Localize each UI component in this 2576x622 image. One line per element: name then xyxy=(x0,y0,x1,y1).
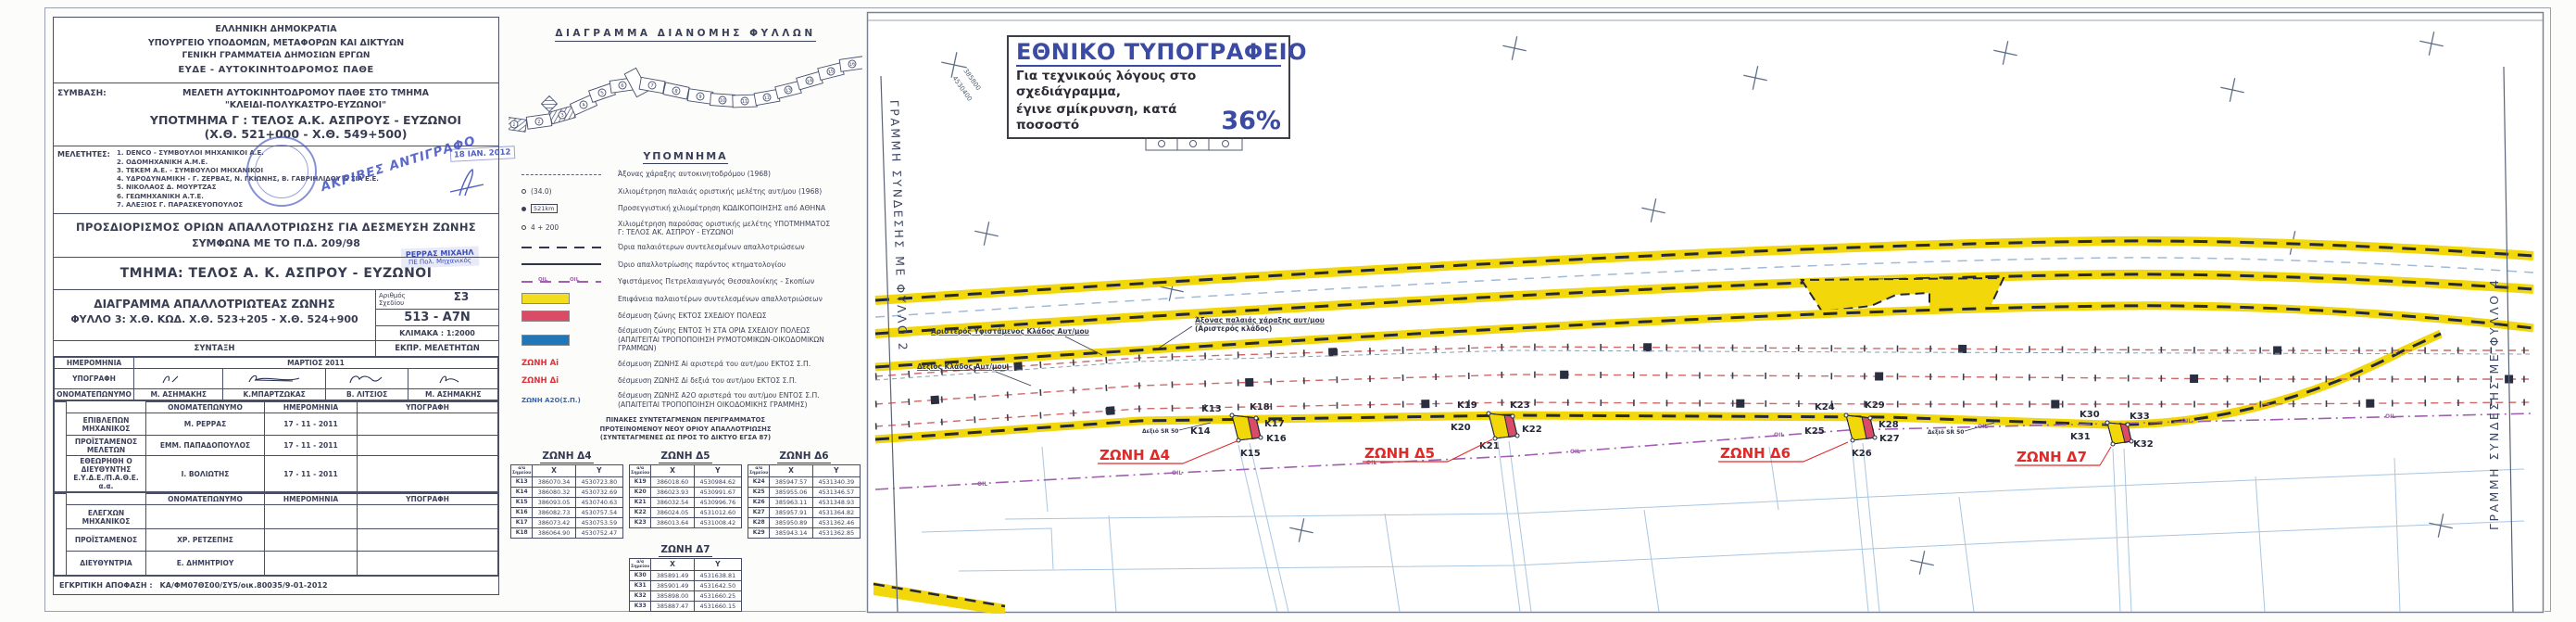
date-cell: 17 - 11 - 2011 xyxy=(265,456,358,492)
designer-item: 6. ΓΕΩΜΗΧΑΝΙΚΗ Α.Τ.Ε. xyxy=(117,193,379,201)
table-row: K17386073.424530753.59 xyxy=(511,517,623,527)
sr-road-label: Δεξιό SR 50 xyxy=(1928,429,1964,436)
signature-mark xyxy=(223,369,325,389)
name-value: Β. ΛΙΤΣΙΟΣ xyxy=(325,389,408,400)
name-value: Μ. ΑΣΗΜΑΚΗΣ xyxy=(408,389,498,400)
svg-text:K14: K14 xyxy=(1190,426,1211,437)
current-chainage-symbol: 4 + 200 xyxy=(521,222,607,235)
col-header-x: X xyxy=(770,464,812,476)
col-header-y: Y xyxy=(812,464,860,476)
table-row: K14386080.324530732.69 xyxy=(511,487,623,497)
legend-label: Επιφάνεια παλαιοτέρων συντελεσμένων απαλ… xyxy=(607,295,823,303)
col-header-date: ΗΜΕΡΟΜΗΝΙΑ xyxy=(265,494,358,505)
col-header-point: α/α Σημείου xyxy=(630,558,651,570)
legend-label: Άξονας χάραξης αυτοκινητοδρόμου (1968) xyxy=(607,170,771,178)
col-header-signature: ΥΠΟΓΡΑΦΗ xyxy=(358,402,498,413)
zone-table-title: ΖΩΝΗ Δ6 xyxy=(748,451,861,462)
signature-cell xyxy=(358,529,498,552)
svg-text:K30: K30 xyxy=(2080,410,2100,420)
svg-text:K32: K32 xyxy=(2133,439,2154,450)
svg-text:K18: K18 xyxy=(1250,402,1270,413)
table-row: K16386082.734530757.54 xyxy=(511,507,623,517)
current-sheet-marker xyxy=(542,96,558,112)
left-branch-label: Αριστερός Υφιστάμενος Κλάδος Αυτ/μου xyxy=(931,327,1089,336)
table-row: K28385950.894531362.46 xyxy=(748,517,861,527)
svg-text:K17: K17 xyxy=(1264,419,1285,429)
legend-item: 521km Προσεγγιστική χιλιομέτρηση ΚΩΔΙΚΟΠ… xyxy=(521,202,862,215)
right-branch-label: Δεξιός Κλάδος Αυτ/μου xyxy=(917,362,1007,371)
date-cell xyxy=(265,552,358,576)
table-row: K22386024.054531012.60 xyxy=(630,507,742,517)
round-seal-stamp xyxy=(246,136,317,207)
legend-label: Υφιστάμενος Πετρελαιαγωγός Θεσσαλονίκης … xyxy=(607,277,814,286)
table-row: K31385901.494531642.50 xyxy=(630,580,742,590)
svg-text:OIL: OIL xyxy=(1774,432,1784,438)
col-header-point: α/α Σημείου xyxy=(511,464,533,476)
stamp-signature xyxy=(432,164,487,204)
national-printing-office-note: ΕΘΝΙΚΟ ΤΥΠΟΓΡΑΦΕΙΟ Για τεχνικούς λόγους … xyxy=(1007,35,1290,139)
determination-line: ΠΡΟΣΔΙΟΡΙΣΜΟΣ ΟΡΙΩΝ ΑΠΑΛΛΟΤΡΙΩΣΗΣ ΓΙΑ ΔΕ… xyxy=(57,221,495,234)
contract-label: ΣΥΜΒΑΣΗ: xyxy=(57,87,117,142)
table-row: K33385887.474531660.15 xyxy=(630,601,742,611)
drawing-sheet-range: ΦΥΛΛΟ 3: Χ.Θ. ΚΩΔ. Χ.Θ. 523+205 - Χ.Θ. 5… xyxy=(56,313,373,325)
role-cell: ΕΘΕΩΡΗΘΗ Ο ΔΙΕΥΘΥΝΤΗΣ Ε.Υ.Δ.Ε./Π.Α.Θ.Ε. … xyxy=(67,456,146,492)
drawing-number-label: Αριθμός Σχεδίου xyxy=(376,290,424,309)
designer-item: 7. ΑΛΕΞΙΟΣ Γ. ΠΑΡΑΣΚΕΥΟΠΟΥΛΟΣ xyxy=(117,201,379,209)
drawing-sheet: ΕΛΛΗΝΙΚΗ ΔΗΜΟΚΡΑΤΙΑ ΥΠΟΥΡΓΕΙΟ ΥΠΟΔΟΜΩΝ, … xyxy=(0,0,2576,622)
zone-label-d7: ΖΩΝΗ Δ7 xyxy=(2017,449,2087,465)
zone-table-d7: ΖΩΝΗ Δ7 α/α ΣημείουXY K30385891.49453163… xyxy=(629,544,742,612)
printing-office-line: Για τεχνικούς λόγους στο σχεδιάγραμμα, xyxy=(1016,69,1281,100)
svg-text:OIL: OIL xyxy=(2385,413,2395,420)
zone-table-title: ΖΩΝΗ Δ5 xyxy=(629,451,742,462)
svg-text:11: 11 xyxy=(742,99,748,105)
date-row-label: ΗΜΕΡΟΜΗΝΙΑ xyxy=(55,358,134,369)
role-cell: ΕΛΕΓΧΩΝ ΜΗΧΑΝΙΚΟΣ xyxy=(67,505,146,529)
legend-panel: ΔΙΑΓΡΑΜΜΑ ΔΙΑΝΟΜΗΣ ΦΥΛΛΩΝ 1 2 3 4 5 6 7 … xyxy=(509,17,862,615)
legend-label: δέσμευση ΖΩΝΗΣ Α2Ο αριστερά του αυτ/μου … xyxy=(607,391,843,409)
table-row: K20386023.934530991.67 xyxy=(630,487,742,497)
legend-item: OILOIL Υφιστάμενος Πετρελαιαγωγός Θεσσαλ… xyxy=(521,275,862,288)
review-table: ΟΝΟΜΑΤΕΠΩΝΥΜΟ ΗΜΕΡΟΜΗΝΙΑ ΥΠΟΓΡΑΦΗ ΕΛΕΓΧΩ… xyxy=(54,493,498,577)
svg-text:K23: K23 xyxy=(1510,400,1530,411)
col-header-signature: ΥΠΟΓΡΑΦΗ xyxy=(358,494,498,505)
legend-item: Άξονας χάραξης αυτοκινητοδρόμου (1968) xyxy=(521,168,862,181)
table-row: K15386093.054530740.63 xyxy=(511,497,623,507)
table-row: K19386018.604530984.62 xyxy=(630,476,742,487)
name-cell: Μ. ΡΕΡΡΑΣ xyxy=(146,413,265,436)
signature-cell xyxy=(358,552,498,576)
agency-line: ΓΕΝΙΚΗ ΓΡΑΜΜΑΤΕΙΑ ΔΗΜΟΣΙΩΝ ΕΡΓΩΝ xyxy=(57,50,495,63)
drawing-title: ΔΙΑΓΡΑΜΜΑ ΑΠΑΛΛΟΤΡΙΩΤΕΑΣ ΖΩΝΗΣ xyxy=(56,298,373,311)
reduction-percentage: 36% xyxy=(1221,110,1281,133)
engineer-name-stamp: ΡΕΡΡΑΣ ΜΙΧΑΗΛ ΠΕ Πολ. Μηχανικός xyxy=(401,247,479,269)
expropriation-limit-symbol xyxy=(521,258,607,271)
agency-line: ΕΥΔΕ - ΑΥΤΟΚΙΝΗΤΟΔΡΟΜΟΣ ΠΑΘΕ xyxy=(57,63,495,78)
name-cell: Ι. ΒΟΛΙΩΤΗΣ xyxy=(146,456,265,492)
designer-rep-label: ΕΚΠΡ. ΜΕΛΕΤΗΤΩΝ xyxy=(376,341,498,356)
svg-text:K28: K28 xyxy=(1879,420,1899,430)
zone-ai-text: ΖΩΝΗ Αi xyxy=(521,357,607,370)
side-strip xyxy=(55,402,67,492)
blue-zone-swatch xyxy=(521,334,607,347)
svg-text:K13: K13 xyxy=(1201,404,1222,414)
axis-dash-symbol xyxy=(521,168,607,181)
designers-label: ΜΕΛΕΤΗΤΕΣ: xyxy=(57,149,117,209)
side-strip xyxy=(55,494,67,576)
name-value: Μ. ΑΣΗΜΑΚΗΣ xyxy=(134,389,223,400)
col-header-x: X xyxy=(651,558,694,570)
sr-road-label: Δεξιό SR 50 xyxy=(1142,428,1178,435)
signature-cell xyxy=(358,456,498,492)
contract-line: (Χ.Θ. 521+000 - Χ.Θ. 549+500) xyxy=(117,127,495,141)
zone-label-d6: ΖΩΝΗ Δ6 xyxy=(1720,445,1791,462)
zone-label-d5: ΖΩΝΗ Δ5 xyxy=(1364,445,1435,462)
title-block: ΕΛΛΗΝΙΚΗ ΔΗΜΟΚΡΑΤΙΑ ΥΠΟΥΡΓΕΙΟ ΥΠΟΔΟΜΩΝ, … xyxy=(53,17,499,595)
date-value: ΜΑΡΤΙΟΣ 2011 xyxy=(134,358,498,369)
svg-text:OIL: OIL xyxy=(1570,449,1580,455)
col-header-x: X xyxy=(651,464,694,476)
agency-header: ΕΛΛΗΝΙΚΗ ΔΗΜΟΚΡΑΤΙΑ ΥΠΟΥΡΓΕΙΟ ΥΠΟΔΟΜΩΝ, … xyxy=(54,18,498,83)
table-row: K32385898.004531660.25 xyxy=(630,590,742,601)
designer-item: 1. DENCO - ΣΥΜΒΟΥΛΟΙ ΜΗΧΑΝΙΚΟΙ Α.Ε. xyxy=(117,149,379,158)
table-row: K30385891.494531638.81 xyxy=(630,570,742,580)
legend-item: ΖΩΝΗ Α2Ο(Σ.Π.) δέσμευση ΖΩΝΗΣ Α2Ο αριστε… xyxy=(521,391,862,409)
drawing-scale: ΚΛΙΜΑΚΑ : 1:2000 xyxy=(376,326,498,340)
approval-decision: ΕΓΚΡΙΤΙΚΗ ΑΠΟΦΑΣΗ : ΚΑ/ΦΜ07ΘΣ00/ΣΥ5/οικ.… xyxy=(54,577,498,594)
old-expropriation-dash-symbol xyxy=(521,241,607,254)
col-header-y: Y xyxy=(694,464,741,476)
zone-di-text: ΖΩΝΗ Δi xyxy=(521,374,607,387)
svg-text:K22: K22 xyxy=(1522,425,1542,435)
svg-text:K19: K19 xyxy=(1457,400,1477,411)
map-panel: 385800 4530400 xyxy=(866,11,2545,614)
legend-label: Χιλιομέτρηση παρούσας οριστικής μελέτης … xyxy=(607,220,838,237)
role-cell: ΕΠΙΒΛΕΠΩΝ ΜΗΧΑΝΙΚΟΣ xyxy=(67,413,146,436)
name-cell: ΧΡ. ΡΕΤΖΕΠΗΣ xyxy=(146,529,265,552)
legend-label: δέσμευση ζώνης ΕΝΤΟΣ Ή ΣΤΑ ΟΡΙΑ ΣΧΕΔΙΟΥ … xyxy=(607,326,843,352)
engineer-title: ΠΕ Πολ. Μηχανικός xyxy=(406,257,474,267)
date-cell: 17 - 11 - 2011 xyxy=(265,436,358,456)
date-cell xyxy=(265,505,358,529)
svg-text:K16: K16 xyxy=(1266,434,1287,444)
note-line: ΠΙΝΑΚΕΣ ΣΥΝΤΕΤΑΓΜΕΝΩΝ ΠΕΡΙΓΡΑΜΜΑΤΟΣ xyxy=(509,416,862,425)
sheet-chain: 1 2 3 4 5 6 7 8 9 10 11 12 13 14 15 16 xyxy=(509,57,862,132)
drawing-number: Σ3 xyxy=(424,290,498,309)
printing-office-title: ΕΘΝΙΚΟ ΤΥΠΟΓΡΑΦΕΙΟ xyxy=(1016,40,1281,67)
legend-label: Όριο απαλλοτρίωσης παρόντος κτηματολογίο… xyxy=(607,260,785,269)
name-cell: Ε. ΔΗΜΗΤΡΙΟΥ xyxy=(146,552,265,576)
coded-chainage-symbol: 521km xyxy=(521,202,607,215)
legend-item: Όρια παλαιότερων συντελεσμένων απαλλοτρι… xyxy=(521,241,862,254)
agency-line: ΕΛΛΗΝΙΚΗ ΔΗΜΟΚΡΑΤΙΑ xyxy=(57,23,495,37)
name-row-label: ΟΝΟΜΑΤΕΠΩΝΥΜΟ xyxy=(55,389,134,400)
contract-line: "ΚΛΕΙΔΙ-ΠΟΛΥΚΑΣΤΡΟ-ΕΥΖΩΝΟΙ" xyxy=(117,99,495,111)
zone-a2o-text: ΖΩΝΗ Α2Ο(Σ.Π.) xyxy=(521,394,607,407)
svg-text:K15: K15 xyxy=(1240,449,1261,459)
signature-mark xyxy=(134,369,223,389)
legend-title: ΥΠΟΜΝΗΜΑ xyxy=(509,150,862,162)
signature-mark xyxy=(408,369,498,389)
red-zone-swatch xyxy=(521,310,607,323)
col-header-point: α/α Σημείου xyxy=(630,464,651,476)
legend-item: δέσμευση ζώνης ΕΝΤΟΣ Ή ΣΤΑ ΟΡΙΑ ΣΧΕΔΙΟΥ … xyxy=(521,326,862,352)
svg-text:K27: K27 xyxy=(1879,434,1900,444)
role-cell: ΔΙΕΥΘΥΝΤΡΙΑ xyxy=(67,552,146,576)
sheet-index-title: ΔΙΑΓΡΑΜΜΑ ΔΙΑΝΟΜΗΣ ΦΥΛΛΩΝ xyxy=(509,17,862,39)
legend-item: Όριο απαλλοτρίωσης παρόντος κτηματολογίο… xyxy=(521,258,862,271)
name-cell: ΕΜΜ. ΠΑΠΑΔΟΠΟΥΛΟΣ xyxy=(146,436,265,456)
table-row: K26385963.114531348.93 xyxy=(748,497,861,507)
legend-item: (34.0) Χιλιομέτρηση παλαιάς οριστικής με… xyxy=(521,185,862,198)
svg-text:OIL: OIL xyxy=(977,481,987,488)
svg-text:12: 12 xyxy=(763,95,770,101)
old-axis-label: Άξονας παλαιάς χάραξης αυτ/μου xyxy=(1195,316,1325,324)
table-row: K27385957.914531364.82 xyxy=(748,507,861,517)
legend-item: Επιφάνεια παλαιοτέρων συντελεσμένων απαλ… xyxy=(521,292,862,305)
legend-label: Προσεγγιστική χιλιομέτρηση ΚΩΔΙΚΟΠΟΙΗΣΗΣ… xyxy=(607,204,825,212)
legend-item: ΖΩΝΗ Δi δέσμευση ΖΩΝΗΣ Δi δεξιά του αυτ/… xyxy=(521,374,862,387)
date-cell: 17 - 11 - 2011 xyxy=(265,413,358,436)
signature-cell xyxy=(358,505,498,529)
pipeline-symbol: OILOIL xyxy=(521,275,607,288)
svg-text:K29: K29 xyxy=(1865,400,1885,411)
svg-text:K31: K31 xyxy=(2070,432,2091,442)
sheet-index-diagram: 1 2 3 4 5 6 7 8 9 10 11 12 13 14 15 16 xyxy=(509,39,862,137)
legend-label: δέσμευση ΖΩΝΗΣ Αi αριστερά του αυτ/μου Ε… xyxy=(607,360,810,368)
role-cell: ΠΡΟΪΣΤΑΜΕΝΟΣ xyxy=(67,529,146,552)
yellow-area-swatch xyxy=(521,292,607,305)
agency-line: ΥΠΟΥΡΓΕΙΟ ΥΠΟΔΟΜΩΝ, ΜΕΤΑΦΟΡΩΝ ΚΑΙ ΔΙΚΤΥΩ… xyxy=(57,37,495,51)
col-header-y: Y xyxy=(694,558,741,570)
printing-office-line: έγινε σμίκρυνση, κατά ποσοστό xyxy=(1016,102,1213,133)
table-row: K23386013.644531008.42 xyxy=(630,517,742,527)
col-header-point: α/α Σημείου xyxy=(748,464,770,476)
zone-table-d6: ΖΩΝΗ Δ6 α/α ΣημείουXY K24385947.57453134… xyxy=(748,451,861,539)
date-cell xyxy=(265,529,358,552)
zone-table-d4: ΖΩΝΗ Δ4 α/α ΣημείουXY K13386070.34453072… xyxy=(510,451,623,539)
signature-cell xyxy=(358,413,498,436)
name-cell xyxy=(146,505,265,529)
legend-item: 4 + 200 Χιλιομέτρηση παρούσας οριστικής … xyxy=(521,220,862,237)
col-header-x: X xyxy=(533,464,575,476)
table-row: K29385943.144531362.85 xyxy=(748,527,861,538)
signature-row-label: ΥΠΟΓΡΑΦΗ xyxy=(55,369,134,389)
drawing-number-box: Αριθμός Σχεδίου Σ3 513 - Α7Ν ΚΛΙΜΑΚΑ : 1… xyxy=(376,290,498,340)
note-line: (ΣΥΝΤΕΤΑΓΜΕΝΕΣ ΩΣ ΠΡΟΣ ΤΟ ΔΙΚΤΥΟ ΕΓΣΑ 87… xyxy=(509,434,862,443)
table-row: K18386064.904530752.47 xyxy=(511,527,623,538)
old-chainage-symbol: (34.0) xyxy=(521,185,607,198)
zone-label-d4: ΖΩΝΗ Δ4 xyxy=(1100,447,1170,463)
col-header-date: ΗΜΕΡΟΜΗΝΙΑ xyxy=(265,402,358,413)
table-row: K13386070.344530723.80 xyxy=(511,476,623,487)
svg-text:K24: K24 xyxy=(1815,402,1835,413)
svg-text:K21: K21 xyxy=(1479,441,1500,451)
note-line: ΠΡΟΤΕΙΝΟΜΕΝΟΥ ΝΕΟΥ ΟΡΙΟΥ ΑΠΑΛΛΟΤΡΙΩΣΗΣ xyxy=(509,425,862,435)
legend-item: δέσμευση ζώνης ΕΚΤΟΣ ΣΧΕΔΙΟΥ ΠΟΛΕΩΣ xyxy=(521,310,862,323)
zone-table-title: ΖΩΝΗ Δ4 xyxy=(510,451,623,462)
approval-label: ΕΓΚΡΙΤΙΚΗ ΑΠΟΦΑΣΗ : xyxy=(59,581,153,590)
legend-label: Χιλιομέτρηση παλαιάς οριστικής μελέτης α… xyxy=(607,187,822,196)
signature-cell xyxy=(358,436,498,456)
zone-table-d5: ΖΩΝΗ Δ5 α/α ΣημείουXY K19386018.60453098… xyxy=(629,451,742,539)
drawing-code: 513 - Α7Ν xyxy=(376,310,498,326)
svg-text:K26: K26 xyxy=(1852,449,1872,459)
role-cell: ΠΡΟΪΣΤΑΜΕΝΟΣ ΜΕΛΕΤΩΝ xyxy=(67,436,146,456)
col-header-name: ΟΝΟΜΑΤΕΠΩΝΥΜΟ xyxy=(146,494,265,505)
old-axis-label-2: (Αριστερός κλάδος) xyxy=(1195,324,1272,333)
legend-label: δέσμευση ΖΩΝΗΣ Δi δεξιά του αυτ/μου ΕΚΤΟ… xyxy=(607,376,797,385)
col-header-name: ΟΝΟΜΑΤΕΠΩΝΥΜΟ xyxy=(146,402,265,413)
table-row: K24385947.574531340.39 xyxy=(748,476,861,487)
signature-mark xyxy=(325,369,408,389)
zone-tables-row: ΖΩΝΗ Δ4 α/α ΣημείουXY K13386070.34453072… xyxy=(509,451,862,539)
zone-table-title: ΖΩΝΗ Δ7 xyxy=(629,544,742,555)
contract-line: ΥΠΟΤΜΗΜΑ Γ : ΤΕΛΟΣ Α.Κ. ΑΣΠΡΟΥΣ - ΕΥΖΩΝΟ… xyxy=(117,113,495,127)
col-header-y: Y xyxy=(575,464,622,476)
table-row: K21386032.544530996.76 xyxy=(630,497,742,507)
empty-cell xyxy=(67,494,146,505)
svg-text:OIL: OIL xyxy=(2181,418,2192,425)
svg-text:K25: K25 xyxy=(1804,426,1825,437)
table-row: K25385955.064531346.57 xyxy=(748,487,861,497)
approval-table-eyde: ΟΝΟΜΑΤΕΠΩΝΥΜΟ ΗΜΕΡΟΜΗΝΙΑ ΥΠΟΓΡΑΦΗ ΕΠΙΒΛΕ… xyxy=(54,401,498,493)
svg-text:K20: K20 xyxy=(1451,423,1471,433)
edge-label-right: ΓΡΑΜΜΗ ΣΥΝΔΕΣΗΣ ΜΕ ΦΥΛΛΟ 4 xyxy=(2487,278,2501,531)
legend-label: Όρια παλαιότερων συντελεσμένων απαλλοτρι… xyxy=(607,243,805,251)
contract-line: ΜΕΛΕΤΗ ΑΥΤΟΚΙΝΗΤΟΔΡΟΜΟΥ ΠΑΘΕ ΣΤΟ ΤΜΗΜΑ xyxy=(117,87,495,99)
svg-text:OIL: OIL xyxy=(1172,470,1182,476)
svg-text:16: 16 xyxy=(849,61,856,68)
legend-label: δέσμευση ζώνης ΕΚΤΟΣ ΣΧΕΔΙΟΥ ΠΟΛΕΩΣ xyxy=(607,311,767,320)
approval-number: ΚΑ/ΦΜ07ΘΣ00/ΣΥ5/οικ.80035/9-01-2012 xyxy=(160,581,328,590)
signatures-table-1: ΗΜΕΡΟΜΗΝΙΑ ΜΑΡΤΙΟΣ 2011 ΥΠΟΓΡΑΦΗ ΟΝΟΜΑΤΕ… xyxy=(54,357,498,401)
compilation-label: ΣΥΝΤΑΞΗ xyxy=(54,341,376,356)
empty-cell xyxy=(67,402,146,413)
svg-text:10: 10 xyxy=(720,98,726,104)
drawing-title-row: ΔΙΑΓΡΑΜΜΑ ΑΠΑΛΛΟΤΡΙΩΤΕΑΣ ΖΩΝΗΣ ΦΥΛΛΟ 3: … xyxy=(54,290,498,341)
name-value: Κ.ΜΠΑΡΤΖΩΚΑΣ xyxy=(223,389,325,400)
compilation-row: ΣΥΝΤΑΞΗ ΕΚΠΡ. ΜΕΛΕΤΗΤΩΝ xyxy=(54,341,498,357)
svg-text:K33: K33 xyxy=(2130,412,2150,422)
legend-item: ΖΩΝΗ Αi δέσμευση ΖΩΝΗΣ Αi αριστερά του α… xyxy=(521,357,862,370)
coordinates-note: ΠΙΝΑΚΕΣ ΣΥΝΤΕΤΑΓΜΕΝΩΝ ΠΕΡΙΓΡΑΜΜΑΤΟΣ ΠΡΟΤ… xyxy=(509,416,862,443)
